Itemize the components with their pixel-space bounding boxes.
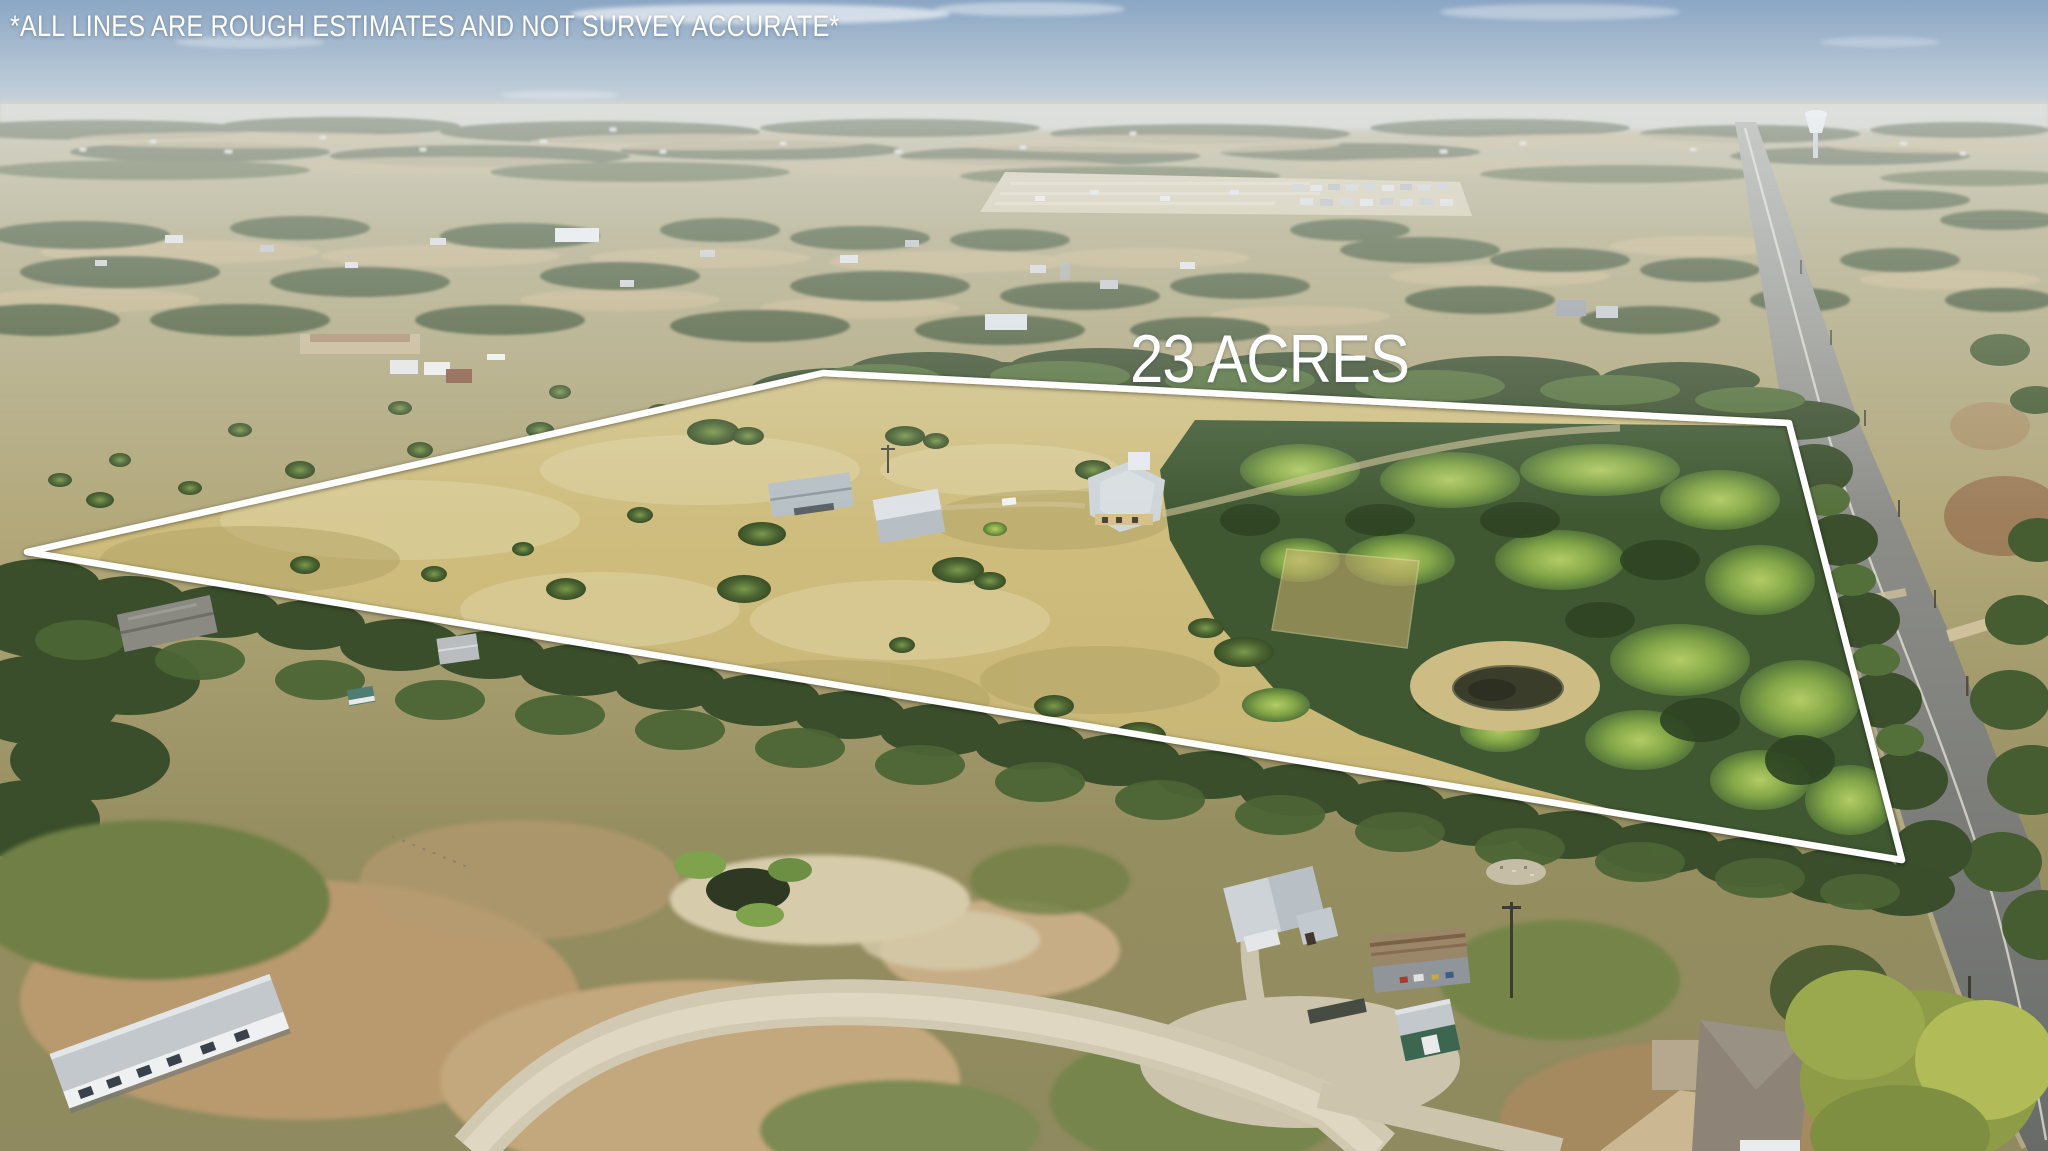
rusty-shed: [1369, 927, 1470, 993]
gray-shed: [436, 633, 479, 664]
aerial-scene: [0, 0, 2048, 1151]
fenced-pen: [1272, 549, 1419, 648]
aerial-photo: *ALL LINES ARE ROUGH ESTIMATES AND NOT S…: [0, 0, 2048, 1151]
tall-pole: [1510, 902, 1513, 998]
atmosphere: [0, 104, 2048, 524]
acreage-label: 23 ACRES: [1130, 320, 1409, 398]
disclaimer-text: *ALL LINES ARE ROUGH ESTIMATES AND NOT S…: [10, 10, 839, 44]
debris-pile: [1486, 859, 1546, 885]
